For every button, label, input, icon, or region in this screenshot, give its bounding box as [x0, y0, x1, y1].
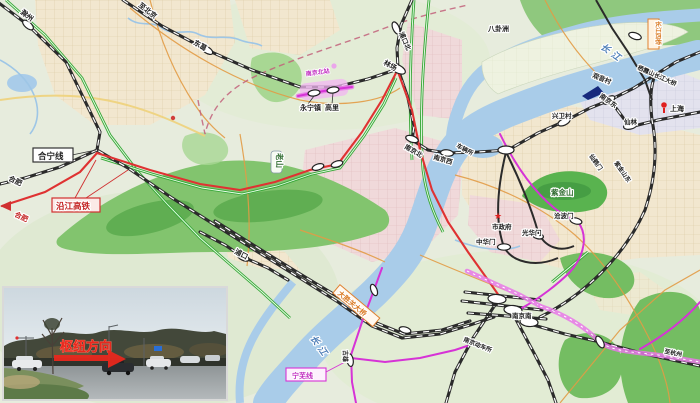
callout-ningwu-label: 宁芜线 [292, 371, 313, 380]
photo-road-sign [154, 346, 162, 351]
label-xianlin: 仙林 [624, 117, 638, 126]
label-shanghai: 上海 [670, 104, 684, 113]
label-zhonghuamen: 中华门 [476, 237, 496, 246]
label-zijinshan: 紫金山 [551, 187, 574, 197]
map-screenshot: ★ 合宁线 沿江高铁 宁芜线 大胜关大桥 长江四桥 老山 至北京 滁 [0, 0, 700, 403]
label-shizhengfu: 市政府 [492, 222, 512, 231]
site-photo-inset: 枢纽方向 [2, 286, 228, 401]
photo-traffic-light [15, 336, 18, 339]
label-yongningzhen: 永宁镇 [299, 103, 321, 112]
callout-hening-label: 合宁线 [37, 151, 64, 161]
svg-text:老山: 老山 [275, 152, 285, 168]
label-xingweicun: 兴卫村 [552, 111, 572, 120]
direction-sign-text: 枢纽方向 [60, 339, 112, 354]
photo-graphic: 枢纽方向 [4, 288, 226, 399]
label-gaoli: 高里 [325, 103, 339, 112]
bridge-label-qiao4: 长江四桥 [648, 19, 662, 49]
svg-text:长江四桥: 长江四桥 [654, 21, 662, 46]
callout-yanjiang-label: 沿江高铁 [55, 201, 91, 211]
label-guanghuamen: 光华门 [521, 228, 542, 237]
label-cangbomen: 沧波门 [554, 211, 574, 220]
label-nanjingnan: 南京南 [512, 311, 532, 320]
government-star-icon: ★ [494, 211, 502, 221]
label-guxiong: 古雄 [341, 350, 349, 362]
label-bajiazhou: 八卦洲 [487, 24, 509, 33]
